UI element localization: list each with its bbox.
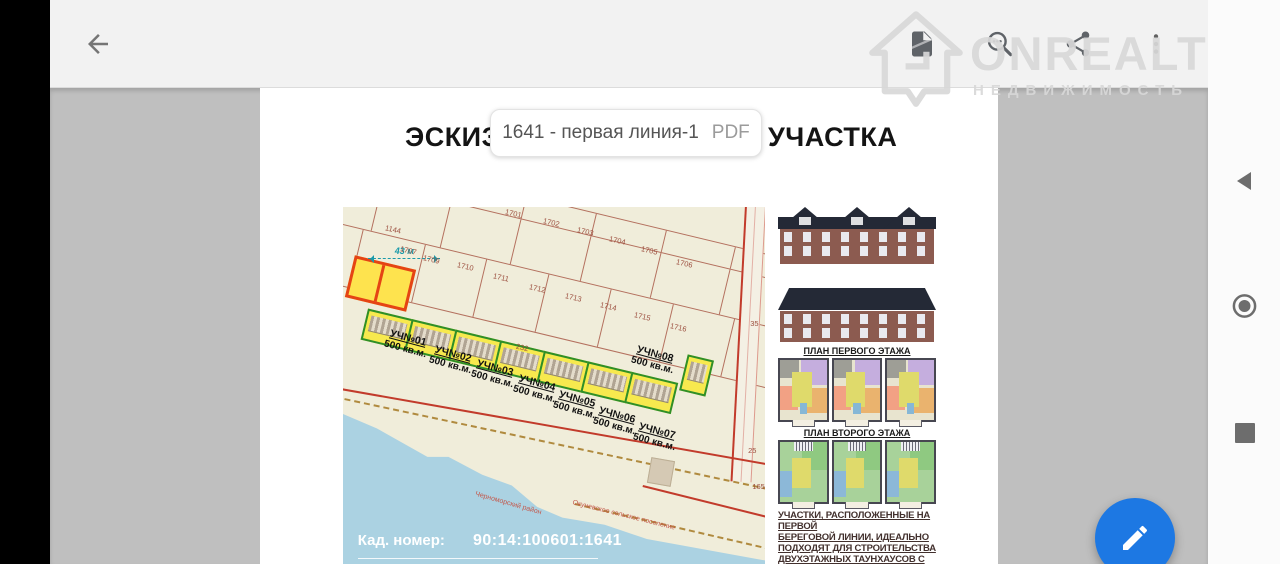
toolbar — [50, 0, 1208, 88]
floor1-caption: ПЛАН ПЕРВОГО ЭТАЖА — [778, 346, 936, 356]
description-note: УЧАСТКИ, РАСПОЛОЖЕННЫЕ НА ПЕРВОЙБЕРЕГОВО… — [778, 510, 936, 564]
cadastre-number: Кад. номер: 90:14:100601:1641 — [358, 532, 622, 550]
pencil-icon — [1119, 522, 1151, 554]
pdf-page[interactable]: ЭСКИЗН УЧАСТКА 43 м — [260, 88, 998, 564]
note-line: БЕРЕГОВОЙ ЛИНИИ, ИДЕАЛЬНО — [778, 532, 936, 543]
cadastre-underline — [358, 558, 599, 559]
double-circle-icon — [1231, 292, 1258, 320]
front-elevation-image — [778, 210, 936, 266]
share-icon — [1063, 29, 1093, 59]
triangle-left-icon — [1233, 169, 1257, 193]
arrow-left-icon — [83, 29, 113, 59]
project-illustrations: ПЛАН ПЕРВОГО ЭТАЖА ПЛАН ВТОРОГО ЭТАЖА УЧ… — [778, 210, 936, 564]
note-line: УЧАСТКИ, РАСПОЛОЖЕННЫЕ НА ПЕРВОЙ — [778, 510, 936, 532]
first-floor-plan — [778, 358, 936, 422]
filename-text: 1641 - первая линия-1 — [502, 122, 699, 144]
more-vertical-icon — [1143, 29, 1169, 59]
lot-cell — [625, 372, 678, 414]
note-line: ПОДХОДЯТ ДЛЯ СТРОИТЕЛЬСТВА — [778, 543, 936, 554]
nav-home-button[interactable] — [1231, 292, 1258, 319]
filetype-badge: PDF — [712, 122, 750, 144]
cadastre-label: Кад. номер: — [358, 532, 445, 550]
document-page-icon — [907, 29, 937, 59]
share-button[interactable] — [1058, 24, 1098, 64]
nav-back-button[interactable] — [1231, 167, 1258, 194]
magnifier-dots-icon — [984, 28, 1016, 60]
back-button[interactable] — [78, 24, 118, 64]
building-footprint — [647, 457, 675, 486]
parcel-number: 25 — [748, 446, 756, 455]
floor2-caption: ПЛАН ВТОРОГО ЭТАЖА — [778, 428, 936, 438]
lot-label: УЧ№06 500 кв.м. — [592, 403, 640, 436]
document-button[interactable] — [902, 24, 942, 64]
cadastre-value: 90:14:100601:1641 — [473, 532, 622, 550]
lot-label: УЧ№07 500 кв.м. — [632, 420, 680, 453]
search-in-doc-button[interactable] — [980, 24, 1020, 64]
square-icon — [1232, 420, 1258, 446]
coast-road-line — [642, 485, 765, 520]
parcel-number: 165 — [752, 482, 765, 491]
android-nav-bar — [1208, 0, 1280, 564]
filename-pill: 1641 - первая линия-1 PDF — [490, 109, 762, 157]
second-floor-plan — [778, 440, 936, 504]
note-line: ДВУХЭТАЖНЫХ ТАУНХАУСОВ С — [778, 554, 936, 564]
parcel-number: 35 — [750, 319, 758, 328]
rear-elevation-image — [778, 286, 936, 344]
site-plan-map: 43 м 11441701170217031704170517061707170… — [343, 207, 765, 564]
display-cutout-strip — [0, 0, 50, 564]
overflow-menu-button[interactable] — [1136, 24, 1176, 64]
nav-recents-button[interactable] — [1231, 419, 1258, 446]
doc-title-fragment-right: УЧАСТКА — [768, 122, 897, 153]
